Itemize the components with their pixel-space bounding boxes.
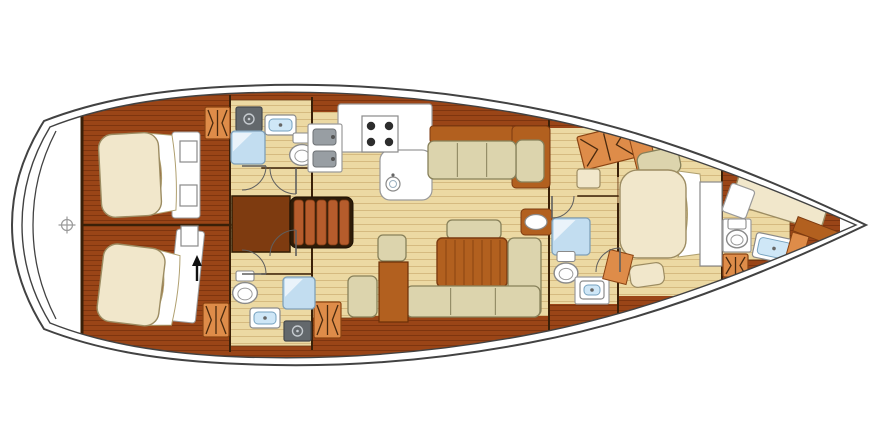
saloon-sofa-port (428, 141, 516, 179)
aft-cabin-stbd-shelf (181, 226, 198, 246)
saloon-sofa-corner-cushion (516, 140, 544, 182)
galley-twin-sink (308, 124, 342, 172)
saloon-bench-back-cushion (447, 220, 501, 239)
interior-layout (82, 78, 840, 366)
shower-mid-head (552, 218, 590, 255)
yacht-floor-plan-figure (0, 0, 890, 446)
toilet-mid-head (554, 252, 578, 284)
toilet-stbd-head (233, 271, 258, 303)
owner-seat-fwd (629, 262, 666, 289)
galley-stove (362, 116, 398, 152)
forepeak-door-panel (700, 182, 722, 266)
shower-stbd-head (283, 277, 315, 309)
lockers-owner-top (618, 96, 722, 146)
lockers-passage-top (549, 94, 618, 128)
washer-port-head (236, 107, 262, 131)
washer-stbd-head (284, 321, 311, 341)
wardrobe-forepeak (723, 254, 748, 277)
saloon-sofa-stbd (406, 286, 540, 317)
aft-cabin-port-shelf-b (180, 185, 197, 206)
transom-line (33, 131, 56, 319)
companionway-steps (290, 197, 353, 248)
owner-bed (620, 170, 702, 258)
aft-cabin-port-bed (98, 131, 178, 218)
wardrobe-port-aft (205, 107, 230, 139)
stern-crosshair (59, 217, 76, 234)
saloon-table (437, 238, 507, 287)
wardrobe-stbd-aft-b (314, 302, 341, 338)
shower-port-head (231, 131, 265, 164)
engine-box (232, 196, 290, 252)
toilet-forepeak (727, 219, 748, 248)
sink-port-head (265, 115, 296, 135)
galley-counter-return (380, 150, 432, 200)
yacht-floor-plan-svg (0, 0, 890, 446)
saloon-seat (378, 235, 406, 261)
aft-cabin-stbd-bed (96, 242, 183, 329)
wardrobe-stbd-aft-a (203, 303, 229, 337)
nav-seat (348, 276, 377, 317)
lockers-midhead-bottom (549, 304, 618, 348)
aft-cabin-port-shelf-a (180, 141, 197, 162)
saloon-cabinet (379, 262, 408, 322)
sink-mid-head (580, 281, 604, 299)
sink-stbd-head (250, 308, 280, 328)
wet-bar-basin (525, 215, 547, 230)
owner-seat-aft (577, 169, 600, 188)
